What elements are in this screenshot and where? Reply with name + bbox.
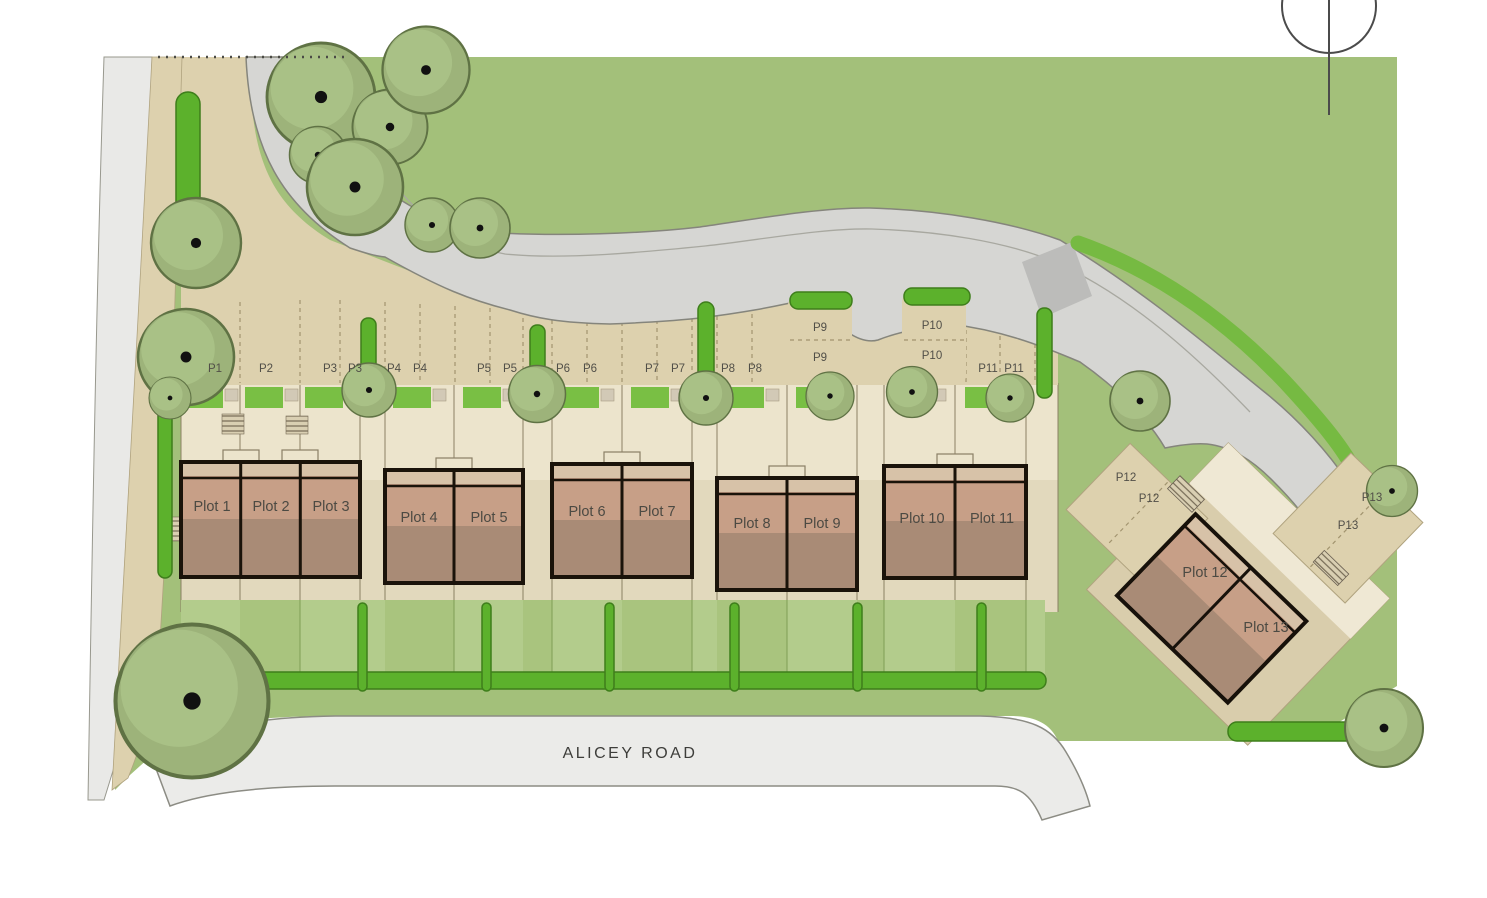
parking-label-p5b: P5 [503,363,517,375]
parking-label-p7: P7 [645,363,659,375]
plot-label-9: Plot 9 [803,516,840,532]
plot-label-5: Plot 5 [470,510,507,526]
tree-icon [149,377,191,419]
plot-label-13: Plot 13 [1243,620,1288,636]
parking-label-p6b: P6 [583,363,597,375]
tree-icon [806,372,854,420]
parking-label-p3: P3 [323,363,337,375]
tree-icon [307,139,403,235]
parking-label-p9: P9 [813,322,827,334]
plot-label-3: Plot 3 [312,499,349,515]
alicey-road [152,716,1090,820]
parking-label-p7b: P7 [671,363,685,375]
alicey-road-label: ALICEY ROAD [563,745,698,762]
parking-label-p4: P4 [387,363,402,375]
house-block-plots-1-3 [181,462,360,577]
parking-label-p10: P10 [922,320,942,332]
house-block-plots-8-9 [717,478,857,590]
parking-label-p12b: P12 [1139,493,1159,505]
parking-label-p11: P11 [978,363,998,375]
tree-icon [383,26,470,113]
entrance-steps-hatch [222,414,244,434]
plot-label-2: Plot 2 [252,499,289,515]
parking-label-p3b: P3 [348,363,362,375]
house-block-plots-4-5 [385,470,523,583]
parking-label-p5: P5 [477,363,491,375]
plot-label-11: Plot 11 [970,511,1014,527]
parking-label-p8: P8 [721,363,735,375]
plot-label-12: Plot 12 [1182,565,1227,581]
plot-label-1: Plot 1 [193,499,230,515]
parking-label-p11b: P11 [1004,363,1024,375]
parking-label-p2: P2 [259,363,273,375]
plot-label-8: Plot 8 [733,516,770,532]
tree-icon [450,198,510,258]
parking-label-p6: P6 [556,363,570,375]
parking-label-p1: P1 [208,363,222,375]
parking-label-p4b: P4 [413,363,428,375]
plot-label-6: Plot 6 [568,504,605,520]
tree-icon [1367,466,1418,517]
tree-icon [986,374,1034,422]
parking-label-p13: P13 [1362,492,1382,504]
site-plan-page: P1 P2 P3 P3 P4 P4 P5 P5 P6 P6 P7 P7 P8 P… [0,0,1487,898]
entrance-steps-hatch [286,416,308,434]
site-plan-drawing: P1 P2 P3 P3 P4 P4 P5 P5 P6 P6 P7 P7 P8 P… [0,0,1487,898]
tree-icon [679,371,733,425]
tree-icon [151,198,241,288]
parking-label-p13b: P13 [1338,520,1358,532]
parking-label-p8b: P8 [748,363,762,375]
tree-icon [887,367,938,418]
tree-icon [1110,371,1170,431]
tree-icon [116,625,269,778]
plot-label-10: Plot 10 [899,511,944,527]
plot-label-4: Plot 4 [400,510,437,526]
tree-icon [1345,689,1423,767]
parking-label-p9b: P9 [813,352,827,364]
plot-label-7: Plot 7 [638,504,675,520]
parking-label-p12: P12 [1116,472,1136,484]
house-block-plots-6-7 [552,464,692,577]
parking-label-p10b: P10 [922,350,942,362]
